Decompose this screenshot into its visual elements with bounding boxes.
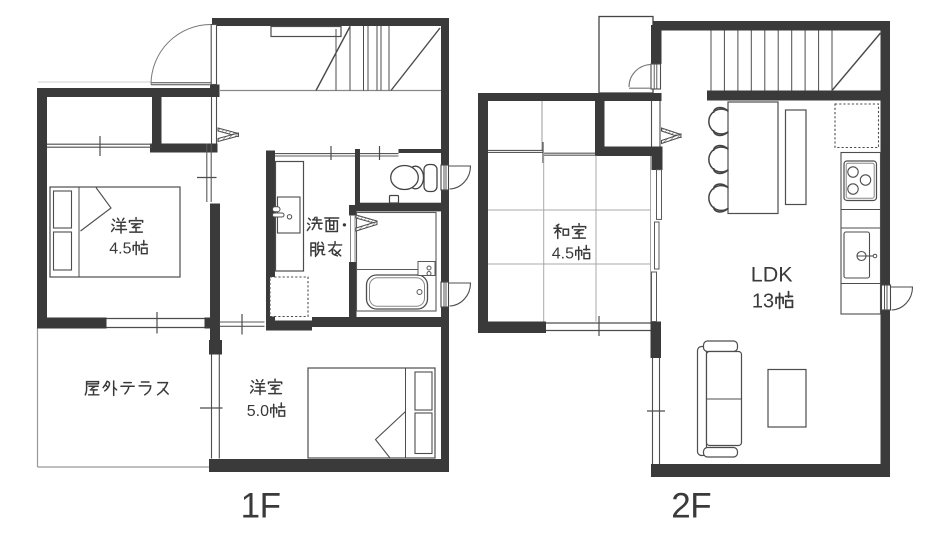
svg-text:1F: 1F bbox=[241, 487, 281, 526]
svg-text:4.5: 4.5 bbox=[552, 245, 574, 262]
svg-text:LDK: LDK bbox=[751, 263, 793, 287]
svg-text:13: 13 bbox=[752, 291, 774, 313]
svg-text:5.0: 5.0 bbox=[247, 403, 269, 420]
svg-text:4.5: 4.5 bbox=[109, 240, 131, 257]
svg-text:2F: 2F bbox=[671, 487, 711, 526]
